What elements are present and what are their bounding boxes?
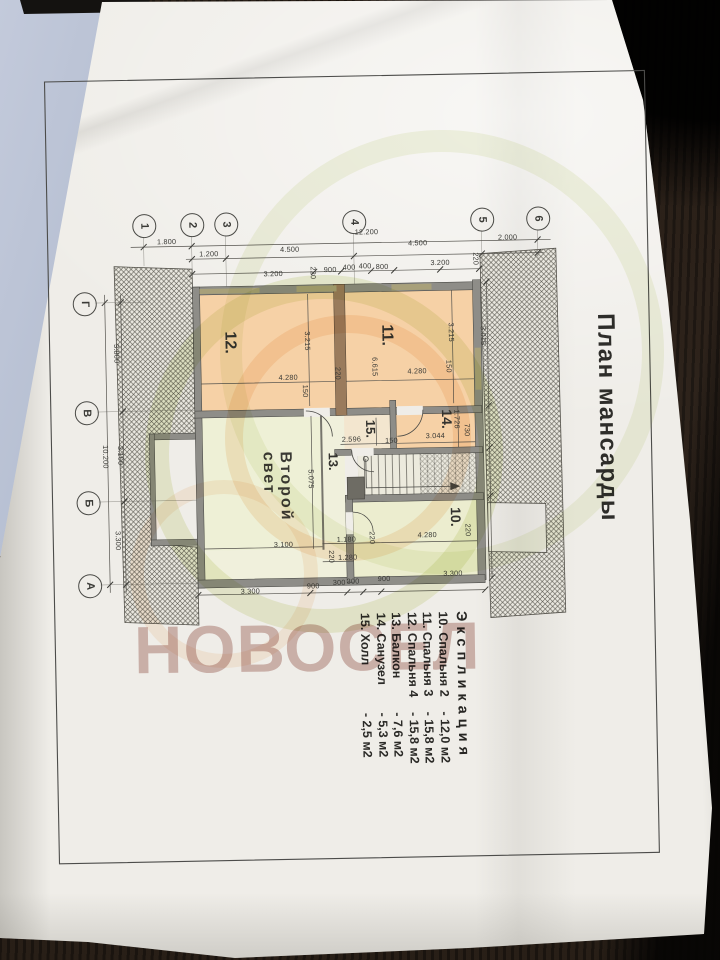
axis-label: 2: [186, 222, 198, 228]
dim-label: 3.300: [443, 569, 462, 578]
dim-label: 3.300: [114, 531, 123, 550]
room-number-label: 14.: [439, 409, 455, 429]
dim-label: 3.300: [241, 586, 260, 595]
dim-label: 4.280: [418, 530, 437, 539]
dim-label: 220: [464, 523, 473, 536]
dim-label: 150: [385, 436, 398, 445]
dim-label: 1.280: [338, 553, 357, 562]
dim-label: 900: [307, 581, 320, 590]
dim-label: 220: [327, 550, 336, 563]
axis-label: Б: [83, 499, 95, 507]
explication-room-area: - 2,5 м2: [358, 713, 374, 758]
dim-label: 1.800: [157, 237, 176, 246]
axis-label: Г: [79, 301, 91, 307]
dim-label: 3.100: [116, 446, 125, 465]
explication-room-area: - 7,6 м2: [389, 712, 405, 757]
dim-label: 3.200: [430, 258, 449, 267]
dim-label: 150: [301, 385, 310, 398]
axis-label: 1: [138, 223, 150, 229]
axis-label: 4: [348, 219, 360, 225]
dim-label: 10.200: [101, 445, 110, 469]
second-light-label: Второй свет: [260, 451, 295, 522]
dim-label: 2.596: [342, 434, 361, 443]
dim-label: 3.044: [426, 431, 445, 440]
dim-label: 300: [347, 577, 360, 586]
photo-scene: 123456 ГВБА 1.80012.2001.2004.5004.5002.…: [0, 0, 720, 960]
drawing-layer: 123456 ГВБА 1.80012.2001.2004.5004.5002.…: [0, 0, 720, 960]
dim-label: 220: [471, 252, 480, 265]
axis-label: 6: [532, 215, 544, 221]
dim-label: 220: [309, 266, 318, 279]
dim-label: 1.200: [199, 249, 218, 258]
second-light-line2: свет: [260, 452, 278, 522]
dim-label: 12.200: [355, 227, 379, 236]
dim-label: 3.215: [303, 331, 312, 350]
dim-label: 900: [324, 265, 337, 274]
page-title: План мансарды: [591, 313, 623, 522]
axis-label: 3: [220, 221, 232, 227]
brand-watermark: НОВОСЕЛ: [133, 608, 480, 690]
room-number-label: 13.: [326, 452, 341, 470]
dim-label: 220: [368, 531, 377, 544]
dim-label: 4.280: [407, 366, 426, 375]
room-number-label: 10.: [448, 507, 464, 527]
dim-label: 3.800: [112, 344, 121, 363]
dim-label: 2.000: [498, 232, 517, 241]
dim-label: 5.075: [306, 469, 315, 488]
dim-label: 3.100: [274, 540, 293, 549]
second-light-line1: Второй: [277, 451, 295, 521]
dim-label: 1.180: [337, 535, 356, 544]
dim-label: 3.215: [447, 323, 456, 342]
dim-label: 300: [333, 578, 346, 587]
dim-label: 6.615: [370, 357, 379, 376]
explication-room-area: - 15,8 м2: [420, 712, 437, 764]
axis-label: В: [81, 409, 93, 417]
axis-label: 5: [476, 216, 488, 222]
room-number-label: 11.: [377, 324, 395, 346]
room-number-label: 15.: [363, 420, 378, 438]
dim-label: 730: [463, 423, 472, 436]
explication-room-area: - 5,3 м2: [374, 712, 390, 757]
dim-label: 220: [334, 367, 343, 380]
dim-label: 3.200: [263, 269, 282, 278]
dim-label: 400: [343, 263, 356, 272]
dim-label: 4.500: [280, 245, 299, 254]
dim-label: 800: [376, 262, 389, 271]
explication-room-area: - 12,0 м2: [436, 711, 453, 763]
axis-label: А: [84, 582, 96, 590]
explication-room-area: - 15,8 м2: [405, 712, 422, 764]
dim-label: 3.015: [479, 326, 488, 345]
dim-label: 150: [444, 360, 453, 373]
room-number-label: 12.: [220, 331, 238, 354]
dim-label: 4.280: [278, 373, 297, 382]
dim-label: 4.500: [408, 238, 427, 247]
dim-label: 900: [378, 574, 391, 583]
dim-label: 400: [359, 261, 372, 270]
